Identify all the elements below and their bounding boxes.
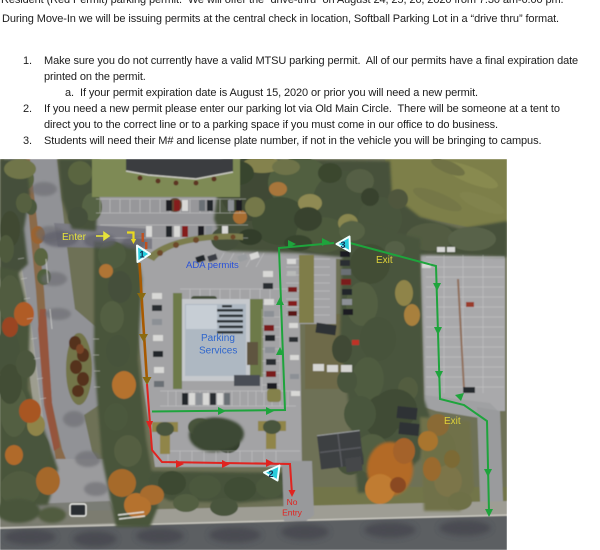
svg-text:Parking: Parking [201, 333, 235, 344]
svg-text:3: 3 [341, 240, 346, 250]
svg-text:No: No [287, 497, 298, 507]
svg-text:Services: Services [199, 346, 237, 357]
svg-text:2: 2 [269, 469, 274, 479]
svg-text:Exit: Exit [444, 416, 461, 427]
svg-text:Enter: Enter [62, 232, 87, 243]
svg-text:Entry: Entry [282, 508, 303, 518]
svg-text:ADA permits: ADA permits [186, 260, 239, 271]
svg-text:1: 1 [140, 250, 145, 260]
svg-text:Exit: Exit [376, 255, 393, 266]
